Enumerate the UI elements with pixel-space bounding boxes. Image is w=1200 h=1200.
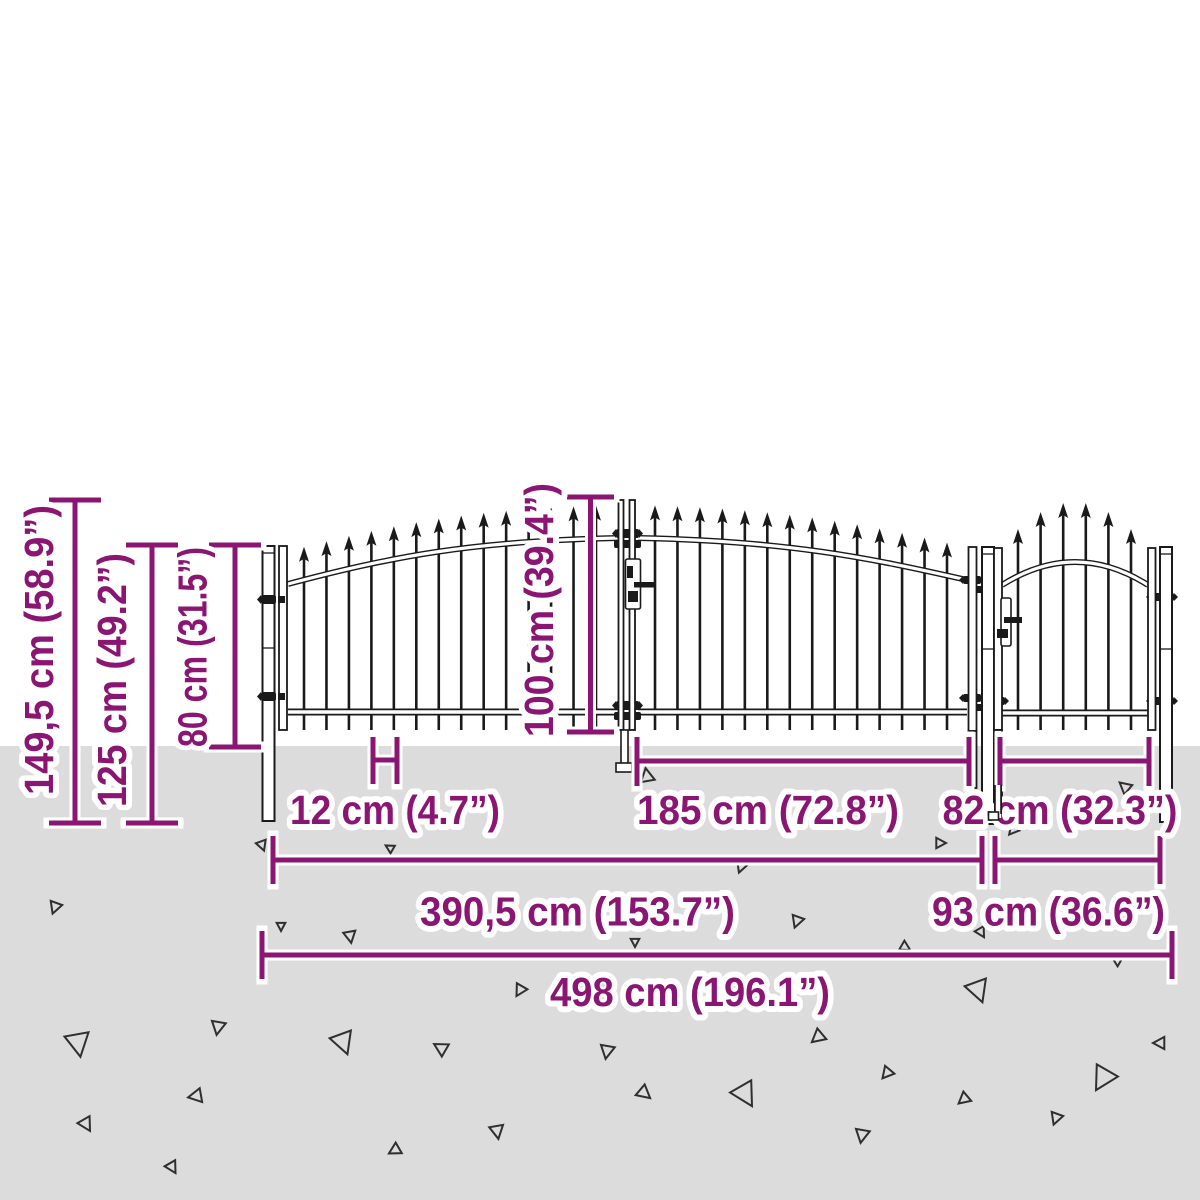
svg-text:80 cm (31.5”): 80 cm (31.5”) (170, 547, 216, 747)
svg-text:390,5 cm (153.7”): 390,5 cm (153.7”) (420, 889, 735, 935)
svg-text:149,5 cm (58.9”): 149,5 cm (58.9”) (16, 505, 62, 795)
svg-text:100 cm (39.4”): 100 cm (39.4”) (516, 483, 562, 737)
svg-text:82 cm (32.3”): 82 cm (32.3”) (943, 787, 1178, 833)
svg-text:498 cm (196.1”): 498 cm (196.1”) (550, 969, 830, 1015)
svg-text:185 cm (72.8”): 185 cm (72.8”) (637, 787, 899, 833)
svg-text:12 cm (4.7”): 12 cm (4.7”) (290, 787, 500, 833)
svg-text:125 cm (49.2”): 125 cm (49.2”) (89, 553, 135, 807)
svg-text:93 cm (36.6”): 93 cm (36.6”) (932, 889, 1165, 935)
